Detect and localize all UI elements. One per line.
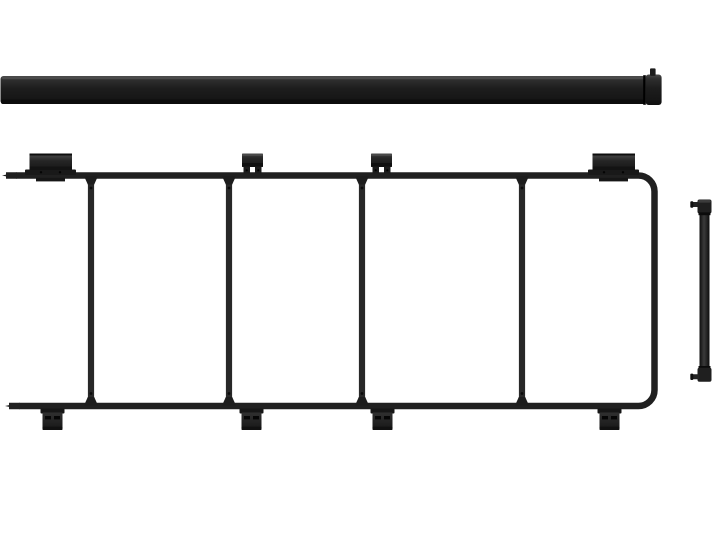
bottom-bracket-1	[41, 409, 65, 431]
crossbar-4	[515, 176, 529, 406]
bottom-bracket-3	[371, 409, 395, 431]
frame-side-rails	[6, 176, 655, 407]
load-bar-end-cap	[646, 75, 662, 106]
crossbar-2	[222, 176, 236, 406]
roof-rack-kit-illustration	[0, 0, 720, 539]
load-bar-seam	[643, 75, 646, 105]
tie-down-bar-bottom-nub-cap	[690, 374, 693, 380]
crossbar-1	[84, 176, 98, 406]
roof-rack-frame	[2, 154, 655, 431]
tie-down-bar-top-collar	[699, 212, 711, 215]
top-clamp-2	[371, 154, 392, 174]
bottom-bracket-2	[240, 409, 264, 431]
top-clamp-1	[242, 154, 263, 174]
load-bar-top-highlight	[2, 77, 645, 80]
tie-down-bar-shaft	[700, 206, 710, 372]
load-bar-bottom-shade	[1, 100, 645, 105]
load-bar-end-nub	[650, 68, 656, 76]
tie-down-bar-bottom-cap	[698, 368, 712, 382]
crossbar-3	[355, 176, 369, 406]
tie-down-bar	[690, 200, 711, 382]
bottom-bracket-4	[598, 409, 622, 431]
tie-down-bar-top-nub-cap	[690, 201, 693, 207]
load-bar	[1, 68, 662, 105]
tie-down-bar-top-cap-highlight	[698, 200, 711, 203]
product-image-canvas	[0, 0, 720, 539]
